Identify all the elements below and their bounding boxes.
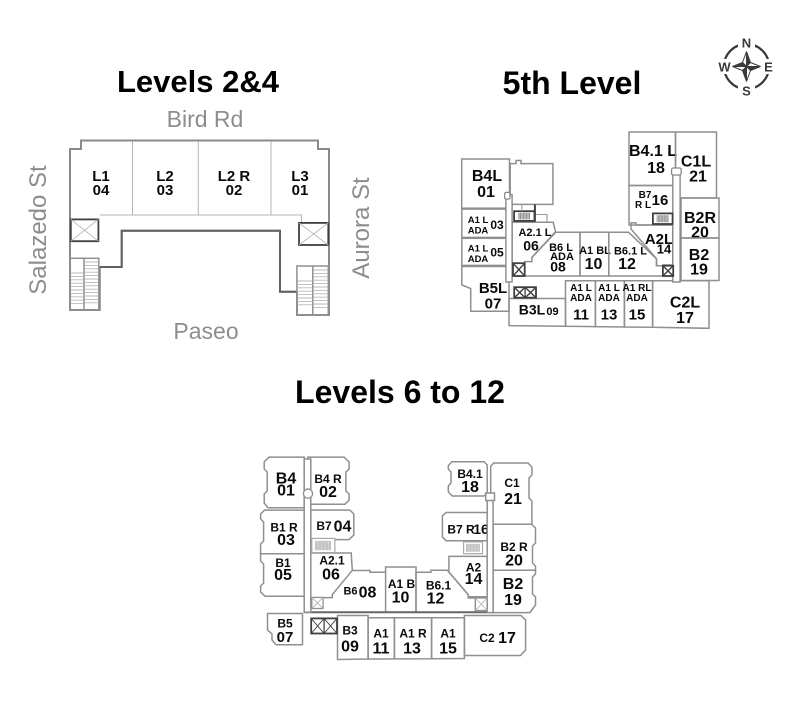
svg-text:W: W: [718, 60, 731, 75]
svg-text:Salazedo St: Salazedo St: [25, 165, 52, 295]
svg-text:E: E: [764, 60, 773, 75]
svg-text:03: 03: [277, 532, 295, 549]
svg-text:07: 07: [485, 296, 502, 313]
svg-text:B4.1 L: B4.1 L: [629, 143, 677, 160]
svg-text:10: 10: [392, 590, 410, 607]
svg-text:08: 08: [550, 258, 566, 274]
svg-text:15: 15: [629, 307, 646, 324]
svg-text:17: 17: [676, 310, 694, 327]
svg-text:18: 18: [461, 479, 479, 496]
svg-text:R L: R L: [635, 200, 651, 211]
svg-text:Bird Rd: Bird Rd: [167, 106, 244, 132]
svg-text:12: 12: [427, 591, 445, 608]
svg-text:01: 01: [477, 184, 495, 201]
svg-text:ADA: ADA: [626, 293, 648, 304]
svg-text:B3L: B3L: [519, 302, 546, 318]
svg-text:C2: C2: [479, 631, 495, 645]
svg-text:16: 16: [652, 192, 669, 209]
svg-text:B2: B2: [503, 576, 524, 593]
svg-text:09: 09: [546, 306, 558, 318]
svg-text:01: 01: [292, 182, 309, 199]
svg-text:10: 10: [585, 256, 603, 273]
svg-text:09: 09: [341, 639, 359, 656]
svg-text:02: 02: [226, 182, 243, 199]
svg-text:B5L: B5L: [479, 280, 507, 297]
svg-text:C1: C1: [504, 476, 520, 490]
svg-text:02: 02: [319, 484, 337, 501]
svg-text:20: 20: [691, 225, 709, 242]
svg-text:Levels 6 to 12: Levels 6 to 12: [295, 374, 505, 410]
svg-text:19: 19: [504, 592, 522, 609]
svg-text:B7: B7: [316, 519, 332, 533]
svg-text:08: 08: [359, 585, 377, 602]
svg-text:21: 21: [504, 491, 522, 508]
svg-text:B7 R: B7 R: [447, 523, 475, 537]
svg-text:21: 21: [689, 169, 707, 186]
svg-text:05: 05: [490, 246, 504, 260]
svg-text:ADA: ADA: [598, 293, 620, 304]
svg-text:11: 11: [573, 307, 589, 324]
svg-text:5th Level: 5th Level: [503, 65, 642, 101]
svg-text:04: 04: [93, 182, 110, 199]
svg-text:S: S: [742, 84, 751, 99]
svg-text:18: 18: [647, 160, 665, 177]
svg-text:14: 14: [657, 242, 672, 257]
svg-text:06: 06: [322, 567, 340, 584]
svg-text:ADA: ADA: [570, 293, 592, 304]
svg-text:Paseo: Paseo: [173, 318, 238, 344]
svg-text:19: 19: [690, 262, 708, 279]
svg-text:N: N: [742, 36, 751, 51]
svg-text:A1 L: A1 L: [468, 215, 489, 226]
svg-text:20: 20: [505, 553, 523, 570]
svg-text:A1: A1: [440, 627, 456, 641]
svg-text:14: 14: [465, 571, 483, 588]
svg-text:Levels 2&4: Levels 2&4: [117, 64, 280, 99]
svg-text:04: 04: [334, 519, 352, 536]
svg-text:12: 12: [618, 256, 636, 273]
svg-text:03: 03: [157, 182, 174, 199]
svg-text:07: 07: [277, 629, 294, 646]
svg-text:06: 06: [523, 238, 539, 254]
svg-text:13: 13: [403, 641, 421, 658]
svg-text:B6: B6: [343, 586, 357, 598]
svg-text:A2.1: A2.1: [319, 554, 345, 568]
svg-text:01: 01: [277, 483, 295, 500]
svg-text:B3: B3: [342, 624, 358, 638]
svg-text:Aurora St: Aurora St: [348, 177, 375, 279]
svg-text:17: 17: [498, 630, 516, 647]
svg-text:ADA: ADA: [468, 226, 489, 237]
svg-text:15: 15: [439, 641, 457, 658]
svg-text:A1 R: A1 R: [399, 627, 427, 641]
svg-text:11: 11: [373, 641, 390, 658]
svg-text:C2L: C2L: [670, 295, 700, 312]
svg-text:B4L: B4L: [472, 168, 502, 185]
svg-text:A1: A1: [373, 627, 389, 641]
svg-text:05: 05: [274, 567, 292, 584]
svg-text:13: 13: [601, 307, 618, 324]
svg-text:03: 03: [490, 218, 504, 232]
svg-text:ADA: ADA: [468, 254, 489, 265]
svg-text:A1 L: A1 L: [468, 244, 489, 255]
